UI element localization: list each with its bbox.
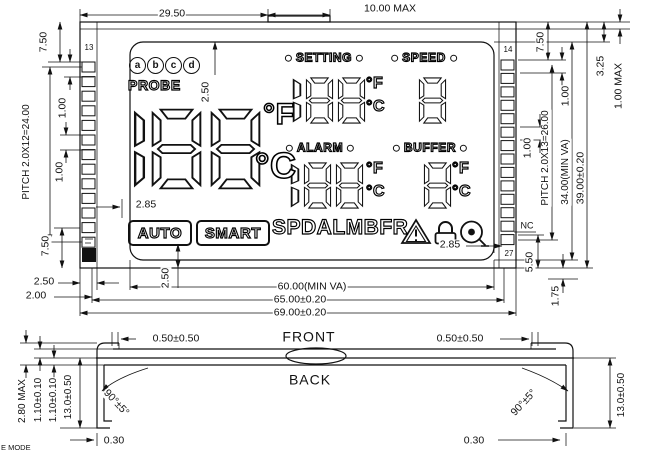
nc-label: NC — [520, 221, 535, 230]
connector-pad — [501, 194, 514, 204]
indicator-dot — [450, 55, 457, 62]
indicator-dot — [347, 145, 354, 152]
buffer-label-group: BUFFER — [393, 142, 467, 155]
alarm-label-group: ALARM — [286, 142, 354, 155]
probe-label: PROBE — [128, 78, 181, 93]
dim-pin-length-right: 13.0±0.50 — [617, 372, 628, 418]
pin-number-14: 14 — [504, 46, 513, 54]
break-symbol — [286, 348, 346, 364]
connector-pad — [82, 223, 95, 233]
alarm-deg-c: °C — [366, 184, 385, 201]
connector-pad — [501, 73, 514, 83]
probe-button-a: a — [129, 57, 146, 74]
auto-badge-label: AUTO — [138, 225, 183, 242]
connector-pad — [501, 208, 514, 218]
connector-pad — [501, 100, 514, 110]
dim-left-top-margin: 7.50 — [38, 31, 49, 53]
connector-pad — [82, 120, 95, 130]
pin-number-27: 27 — [505, 250, 514, 258]
pin-number-13: 13 — [85, 44, 94, 52]
alarm-bell-icon — [461, 222, 489, 247]
dim-left-pin-gap-upper: 1.00 — [57, 97, 68, 119]
setting-deg-c: °C — [366, 99, 385, 116]
dim-badge-left-gap: 2.85 — [135, 199, 157, 210]
buffer-digit — [424, 163, 450, 208]
dim-right-pin-gap-lower: 1.00 — [522, 137, 533, 159]
main-deg-f: °F — [263, 99, 295, 131]
dim-right-edge-gap: 0.50±0.50 — [436, 333, 485, 344]
connector-pad — [501, 221, 514, 231]
indicator-dot — [285, 55, 292, 62]
connector-pad — [82, 62, 95, 72]
dim-bottom-edge-offset: 1.75 — [550, 285, 561, 307]
setting-deg-f: °F — [366, 76, 383, 93]
dim-total-thickness: 2.80 MAX — [18, 378, 29, 424]
connector-pad — [82, 208, 95, 218]
dim-va-width: 60.00(MIN VA) — [277, 281, 348, 292]
setting-label-group: SETTING — [285, 52, 363, 65]
connector-pad — [501, 154, 514, 164]
indicator-dot — [460, 145, 467, 152]
dim-right-top-margin: 7.50 — [535, 31, 546, 53]
dim-icon-top-gap: 2.50 — [200, 81, 211, 103]
dim-left-bottom-margin: 7.50 — [40, 235, 51, 257]
indicator-dot — [286, 145, 293, 152]
back-label: BACK — [289, 373, 331, 388]
dim-icon-right-gap: 2.85 — [439, 239, 461, 250]
buffer-deg-c: °C — [452, 184, 471, 201]
smart-badge-label: SMART — [205, 225, 261, 242]
dim-glass-thickness-1: 1.10±0.10 — [34, 377, 45, 423]
dim-left-edge-gap: 0.50±0.50 — [152, 333, 201, 344]
connector-pads-left — [82, 62, 95, 247]
connector-pad — [501, 181, 514, 191]
dim-left-pitch: PITCH 2.0X12=24.00 — [22, 103, 33, 200]
corner-note: E MODE — [1, 444, 31, 452]
connector-pad — [501, 235, 514, 245]
connector-pads-right — [501, 60, 514, 245]
dim-badge-bottom-gap: 2.50 — [160, 267, 171, 289]
dim-foot-right: 0.30 — [463, 435, 485, 446]
dim-right-pin-gap-upper: 1.00 — [560, 85, 571, 107]
dim-va-height: 34.00(MIN VA) — [561, 138, 572, 205]
alarm-label: ALARM — [297, 142, 343, 155]
top-tab — [268, 16, 330, 22]
connector-pad — [82, 77, 95, 87]
lcd-module-drawing: 29.50 10.00 MAX 13 14 27 NC 7.50 1.00 PI… — [0, 0, 650, 453]
dim-foot-left: 0.30 — [103, 435, 125, 446]
dim-total-height: 39.00±0.20 — [575, 151, 586, 205]
setting-label: SETTING — [296, 52, 352, 65]
dim-right-bottom-margin: 5.50 — [524, 251, 535, 273]
connector-pad — [82, 193, 95, 203]
dim-right-pitch: PITCH 2.0X13=26.00 — [541, 109, 552, 206]
dim-outline-width: 65.00±0.20 — [273, 294, 327, 305]
connector-pad — [82, 135, 95, 145]
connector-pad — [501, 141, 514, 151]
connector-pad — [82, 106, 95, 116]
dim-glass-step: 1.00 MAX — [613, 62, 624, 110]
indicator-dot — [356, 55, 363, 62]
indicator-letters: SPDALMBFR — [272, 217, 408, 239]
dim-ledge-width: 2.50 — [33, 276, 55, 287]
buffer-label: BUFFER — [404, 142, 456, 155]
connector-pad — [501, 127, 514, 137]
indicator-dot — [393, 145, 400, 152]
dim-top-width: 29.50 — [158, 8, 186, 19]
dim-tab-height: 3.25 — [595, 55, 606, 77]
connector-pad — [501, 167, 514, 177]
connector-pad — [82, 91, 95, 101]
smart-badge: SMART — [196, 220, 270, 246]
dim-tab-width: 10.00 MAX — [363, 3, 417, 14]
alarm-deg-f: °F — [366, 161, 383, 178]
connector-pad — [501, 87, 514, 97]
indicator-dot — [391, 55, 398, 62]
dim-left-pin-gap-lower: 1.00 — [54, 161, 65, 183]
connector-pad — [501, 60, 514, 70]
probe-button-d: d — [183, 57, 200, 74]
dim-pin-length-left: 13.0±0.50 — [64, 374, 75, 420]
speed-label: SPEED — [402, 52, 446, 65]
probe-button-b: b — [147, 57, 164, 74]
connector-pad — [82, 150, 95, 160]
front-label: FRONT — [282, 330, 335, 345]
dim-edge-offset: 2.00 — [25, 290, 47, 301]
speed-label-group: SPEED — [391, 52, 457, 65]
setting-digits — [294, 78, 365, 123]
main-digits — [135, 110, 259, 189]
probe-button-c: c — [165, 57, 182, 74]
buffer-deg-f: °F — [452, 161, 469, 178]
alarm-digits — [292, 163, 363, 208]
connector-pad — [82, 164, 95, 174]
dim-total-width: 69.00±0.20 — [273, 307, 327, 318]
connector-pad — [82, 179, 95, 189]
speed-digit — [419, 78, 445, 123]
connector-pad — [501, 114, 514, 124]
auto-badge: AUTO — [128, 220, 192, 246]
dim-glass-thickness-2: 1.10±0.10 — [49, 377, 60, 423]
